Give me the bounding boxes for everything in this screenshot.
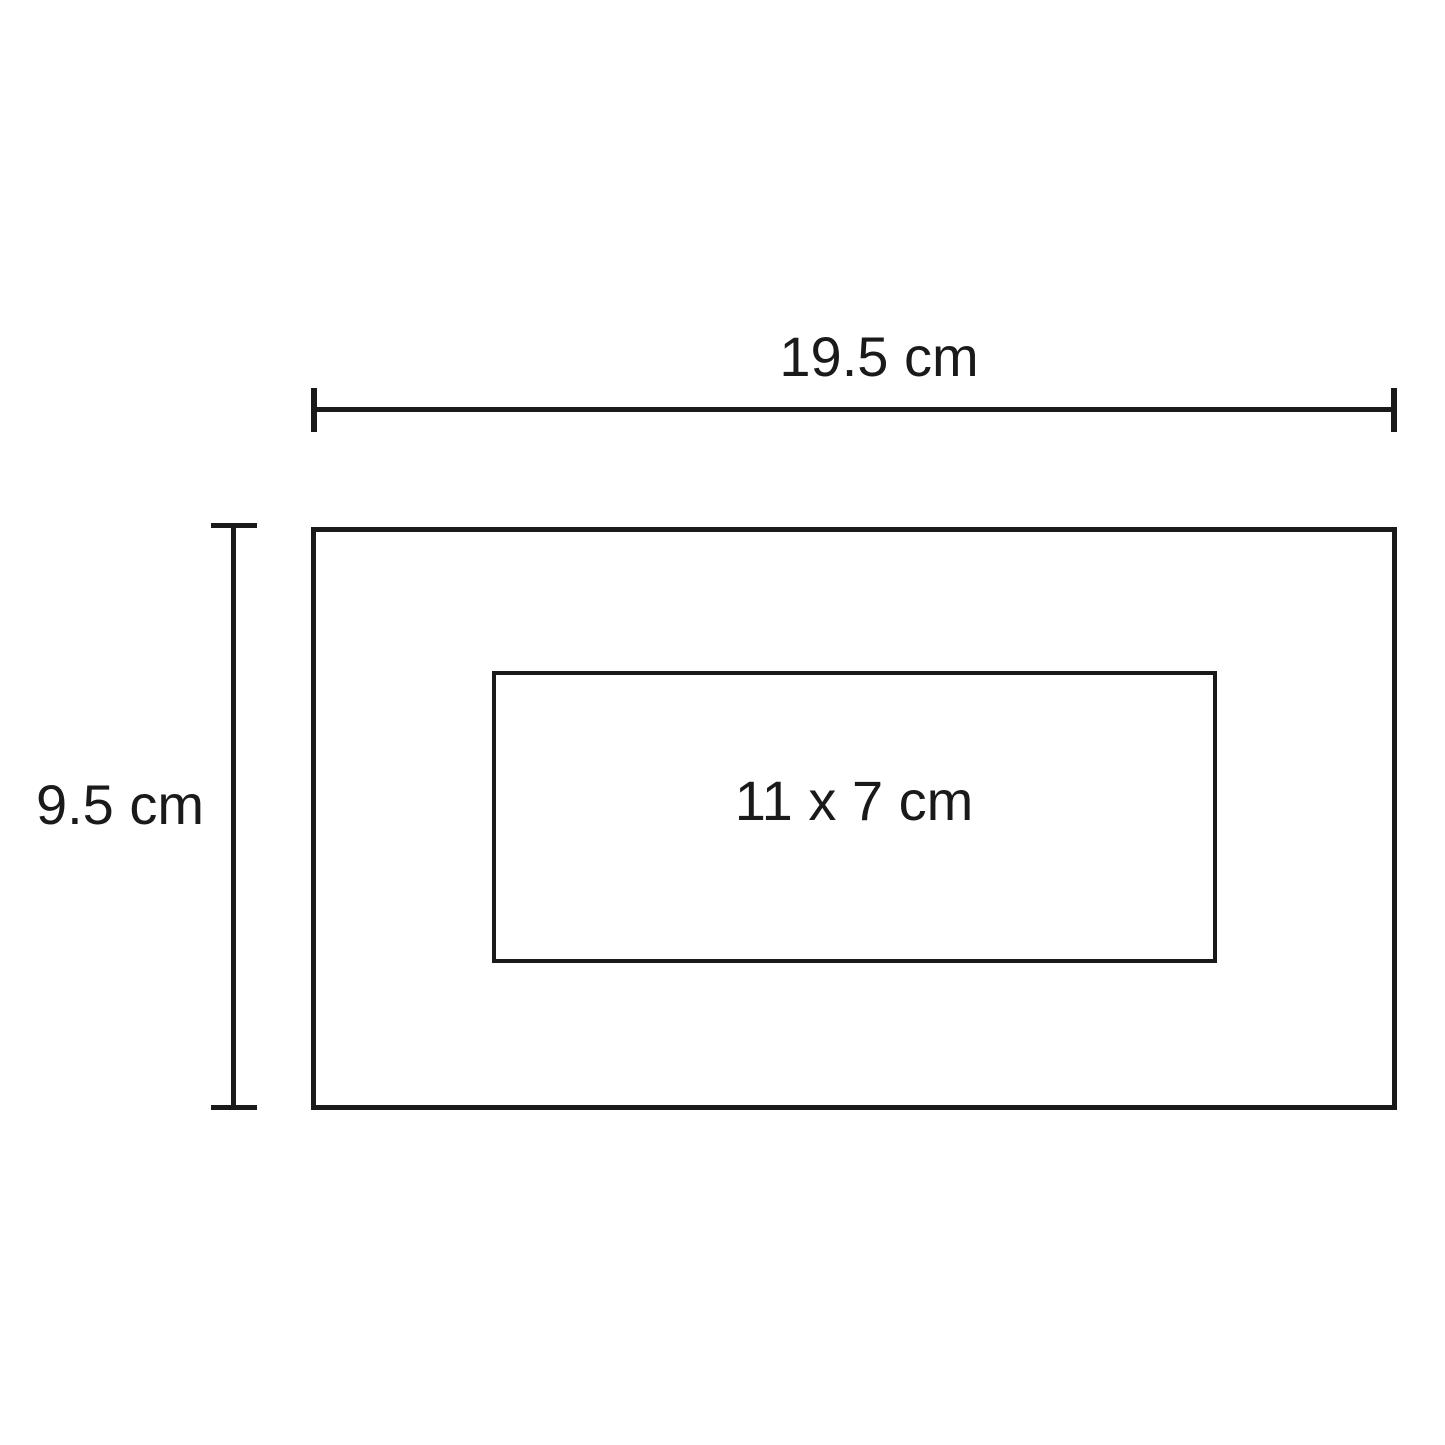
height-dimension-line — [211, 523, 257, 1110]
dimension-bar-horizontal — [311, 407, 1397, 412]
width-dimension-label: 19.5 cm — [779, 329, 978, 385]
dimension-end-tick-right — [1391, 388, 1397, 432]
dimension-bar-vertical — [231, 523, 236, 1110]
inner-size-label: 11 x 7 cm — [735, 773, 974, 829]
height-dimension-label: 9.5 cm — [36, 777, 204, 833]
diagram-canvas: 19.5 cm 9.5 cm 11 x 7 cm — [0, 0, 1445, 1445]
width-dimension-line — [311, 388, 1397, 432]
dimension-end-tick-bottom — [211, 1105, 257, 1110]
